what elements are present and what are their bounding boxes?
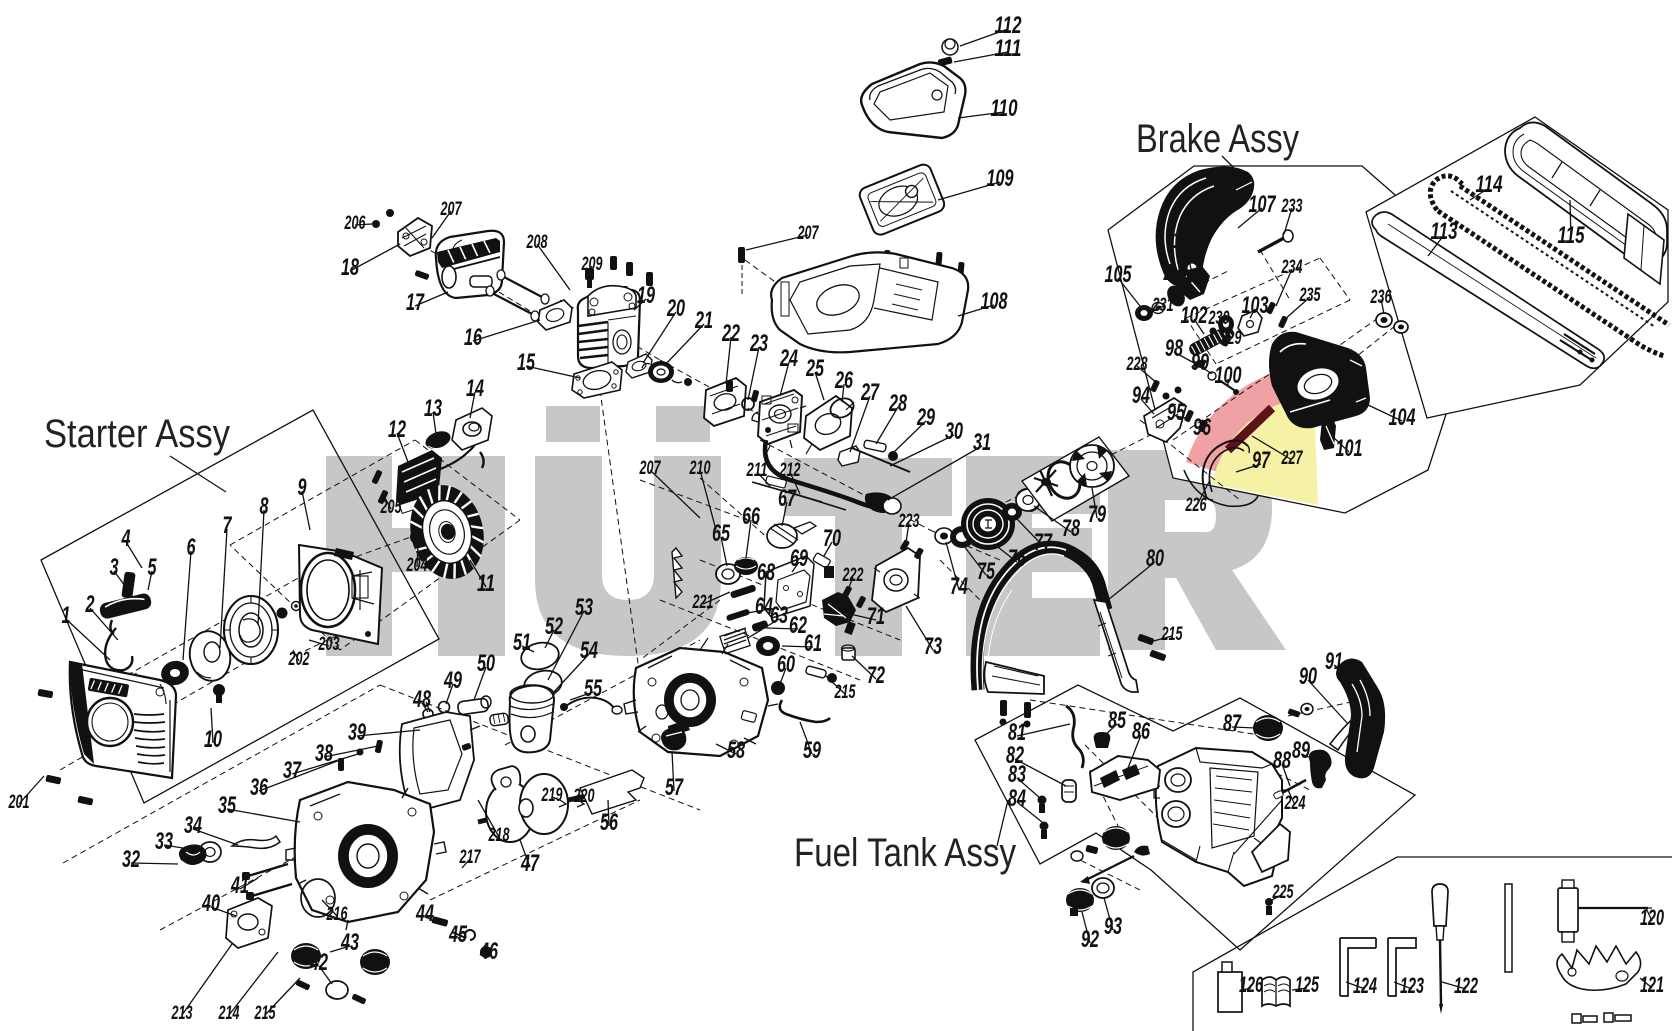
svg-text:33: 33: [155, 828, 173, 855]
svg-text:Brake Assy: Brake Assy: [1136, 117, 1299, 161]
svg-text:11: 11: [477, 570, 495, 597]
svg-text:78: 78: [1062, 515, 1080, 542]
svg-text:201: 201: [8, 792, 30, 813]
svg-text:45: 45: [448, 921, 467, 948]
svg-text:46: 46: [479, 938, 498, 965]
svg-text:43: 43: [340, 929, 359, 956]
svg-text:48: 48: [412, 686, 431, 713]
svg-text:38: 38: [315, 740, 333, 767]
svg-text:236: 236: [1370, 287, 1392, 308]
svg-text:203: 203: [318, 634, 340, 655]
svg-text:223: 223: [898, 511, 920, 532]
svg-text:95: 95: [1167, 399, 1185, 426]
svg-text:31: 31: [973, 429, 991, 456]
svg-text:232: 232: [1163, 264, 1185, 285]
svg-text:75: 75: [977, 558, 995, 585]
svg-text:101: 101: [1336, 435, 1363, 462]
svg-text:66: 66: [742, 503, 760, 530]
svg-text:84: 84: [1008, 785, 1026, 812]
svg-text:124: 124: [1353, 973, 1377, 998]
svg-text:76: 76: [1008, 545, 1026, 572]
svg-text:204: 204: [406, 555, 428, 576]
svg-text:79: 79: [1088, 501, 1106, 528]
svg-text:233: 233: [1281, 196, 1303, 217]
svg-text:64: 64: [755, 593, 773, 620]
svg-text:80: 80: [1146, 545, 1164, 572]
svg-text:90: 90: [1299, 663, 1317, 690]
svg-text:56: 56: [600, 809, 618, 836]
svg-text:207: 207: [797, 223, 820, 244]
svg-text:108: 108: [981, 288, 1008, 315]
svg-text:18: 18: [341, 254, 359, 281]
svg-text:Starter Assy: Starter Assy: [44, 412, 230, 456]
svg-text:205: 205: [380, 497, 402, 518]
svg-text:96: 96: [1193, 414, 1211, 441]
svg-text:110: 110: [991, 95, 1018, 122]
svg-text:207: 207: [440, 199, 463, 220]
svg-text:102: 102: [1181, 302, 1208, 329]
svg-text:14: 14: [466, 375, 484, 402]
svg-text:59: 59: [803, 737, 821, 764]
svg-text:20: 20: [666, 295, 685, 322]
svg-text:32: 32: [122, 846, 140, 873]
svg-text:37: 37: [283, 757, 302, 784]
svg-text:71: 71: [867, 603, 885, 630]
svg-text:47: 47: [520, 850, 540, 877]
svg-text:30: 30: [945, 418, 963, 445]
svg-text:122: 122: [1454, 973, 1478, 998]
svg-text:215: 215: [254, 1003, 276, 1024]
svg-text:44: 44: [415, 900, 434, 927]
svg-text:215: 215: [834, 682, 856, 703]
svg-text:222: 222: [842, 565, 864, 586]
svg-text:123: 123: [1400, 973, 1424, 998]
svg-text:36: 36: [250, 774, 268, 801]
svg-text:49: 49: [443, 667, 462, 694]
svg-text:209: 209: [581, 254, 603, 275]
svg-text:93: 93: [1104, 913, 1122, 940]
svg-text:6: 6: [187, 534, 196, 561]
svg-text:69: 69: [790, 545, 808, 572]
svg-text:221: 221: [692, 592, 714, 613]
svg-text:87: 87: [1223, 710, 1242, 737]
svg-text:103: 103: [1242, 292, 1269, 319]
svg-text:55: 55: [584, 675, 602, 702]
svg-text:25: 25: [805, 355, 824, 382]
svg-text:68: 68: [757, 559, 775, 586]
svg-text:235: 235: [1299, 285, 1321, 306]
svg-text:51: 51: [513, 629, 531, 656]
svg-text:26: 26: [834, 367, 853, 394]
svg-text:12: 12: [388, 416, 406, 443]
svg-text:217: 217: [459, 847, 482, 868]
svg-text:22: 22: [721, 320, 740, 347]
svg-text:226: 226: [1185, 495, 1207, 516]
svg-text:5: 5: [148, 554, 157, 581]
svg-text:107: 107: [1249, 191, 1277, 218]
svg-text:105: 105: [1105, 261, 1132, 288]
svg-text:230: 230: [1208, 308, 1230, 329]
svg-text:113: 113: [1431, 218, 1458, 245]
svg-text:7: 7: [223, 512, 233, 539]
svg-text:104: 104: [1389, 404, 1416, 431]
svg-text:52: 52: [545, 613, 563, 640]
svg-text:10: 10: [204, 726, 222, 753]
svg-text:224: 224: [1284, 793, 1306, 814]
svg-text:91: 91: [1325, 648, 1343, 675]
svg-text:214: 214: [218, 1003, 240, 1024]
svg-text:54: 54: [580, 637, 598, 664]
svg-text:23: 23: [749, 330, 768, 357]
svg-text:98: 98: [1165, 335, 1183, 362]
svg-text:57: 57: [665, 774, 684, 801]
svg-text:100: 100: [1215, 362, 1242, 389]
svg-text:Fuel Tank Assy: Fuel Tank Assy: [794, 831, 1016, 875]
svg-text:28: 28: [888, 390, 907, 417]
svg-text:58: 58: [727, 737, 745, 764]
svg-text:77: 77: [1034, 529, 1053, 556]
svg-text:228: 228: [1126, 354, 1148, 375]
svg-text:225: 225: [1272, 882, 1294, 903]
svg-text:215: 215: [1161, 624, 1183, 645]
svg-text:62: 62: [789, 612, 807, 639]
svg-text:229: 229: [1220, 328, 1242, 349]
svg-text:4: 4: [121, 525, 131, 552]
svg-text:211: 211: [746, 460, 768, 481]
svg-text:50: 50: [477, 650, 495, 677]
svg-text:41: 41: [230, 872, 249, 899]
svg-text:86: 86: [1132, 718, 1150, 745]
svg-text:34: 34: [184, 812, 202, 839]
svg-text:2: 2: [85, 591, 95, 618]
svg-text:216: 216: [326, 904, 348, 925]
svg-text:35: 35: [218, 792, 236, 819]
svg-text:208: 208: [526, 232, 548, 253]
svg-text:85: 85: [1108, 707, 1126, 734]
svg-text:114: 114: [1476, 171, 1503, 198]
svg-text:74: 74: [950, 573, 968, 600]
svg-text:94: 94: [1132, 382, 1150, 409]
svg-text:99: 99: [1191, 349, 1209, 376]
svg-text:109: 109: [987, 165, 1014, 192]
svg-text:218: 218: [488, 825, 510, 846]
svg-text:73: 73: [924, 633, 942, 660]
svg-text:17: 17: [406, 289, 425, 316]
svg-text:88: 88: [1273, 747, 1291, 774]
svg-text:213: 213: [171, 1003, 193, 1024]
svg-text:60: 60: [777, 651, 795, 678]
svg-text:111: 111: [995, 35, 1022, 62]
svg-text:39: 39: [348, 719, 366, 746]
svg-text:210: 210: [689, 458, 711, 479]
svg-text:220: 220: [573, 786, 595, 807]
svg-text:72: 72: [867, 662, 885, 689]
svg-text:3: 3: [110, 554, 119, 581]
svg-text:120: 120: [1640, 905, 1664, 930]
svg-text:89: 89: [1292, 737, 1310, 764]
svg-text:1: 1: [62, 602, 71, 629]
svg-text:231: 231: [1152, 295, 1174, 316]
svg-text:40: 40: [201, 890, 220, 917]
svg-text:112: 112: [995, 12, 1022, 39]
svg-text:29: 29: [916, 404, 935, 431]
svg-text:126: 126: [1239, 972, 1263, 997]
svg-text:207: 207: [639, 458, 662, 479]
svg-text:16: 16: [464, 324, 482, 351]
svg-text:83: 83: [1008, 761, 1026, 788]
svg-text:227: 227: [1281, 448, 1304, 469]
svg-text:21: 21: [694, 307, 713, 334]
svg-text:67: 67: [778, 485, 797, 512]
svg-text:206: 206: [344, 213, 366, 234]
svg-text:8: 8: [260, 493, 269, 520]
svg-text:106: 106: [1173, 227, 1200, 254]
svg-text:121: 121: [1640, 972, 1664, 997]
svg-text:70: 70: [823, 525, 841, 552]
svg-text:53: 53: [575, 594, 593, 621]
svg-text:212: 212: [779, 460, 801, 481]
svg-text:219: 219: [541, 785, 563, 806]
svg-text:125: 125: [1295, 972, 1319, 997]
svg-text:202: 202: [288, 649, 310, 670]
svg-text:92: 92: [1081, 926, 1099, 953]
svg-text:42: 42: [309, 949, 328, 976]
svg-text:9: 9: [298, 474, 307, 501]
svg-text:19: 19: [637, 282, 655, 309]
svg-text:15: 15: [517, 349, 535, 376]
svg-text:13: 13: [424, 395, 442, 422]
svg-text:24: 24: [779, 345, 798, 372]
svg-text:97: 97: [1252, 447, 1271, 474]
svg-text:234: 234: [1281, 257, 1303, 278]
svg-text:115: 115: [1558, 222, 1585, 249]
svg-text:27: 27: [860, 379, 880, 406]
